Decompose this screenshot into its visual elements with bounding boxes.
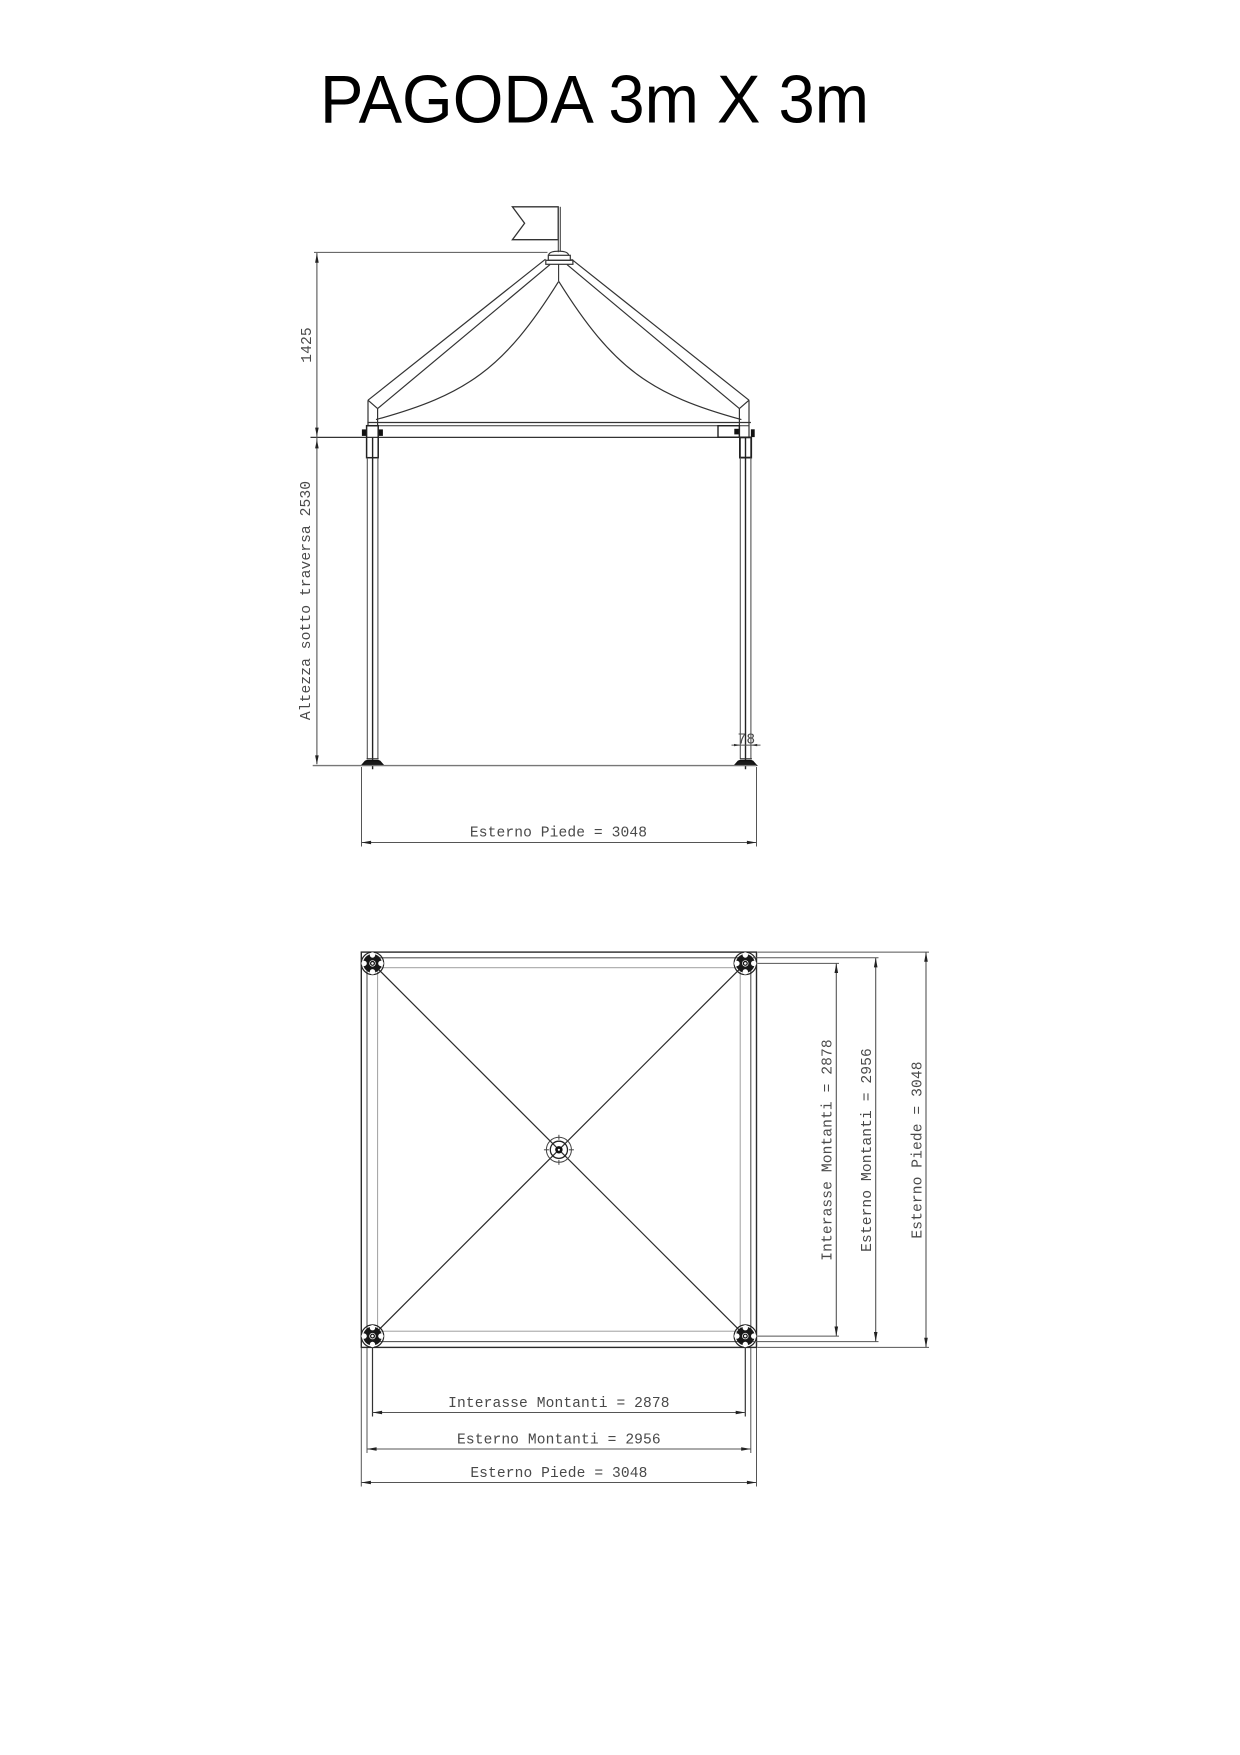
svg-text:Altezza sotto traversa 2530: Altezza sotto traversa 2530: [299, 481, 315, 720]
svg-text:Esterno Piede = 3048: Esterno Piede = 3048: [470, 826, 647, 842]
svg-text:Esterno Piede = 3048: Esterno Piede = 3048: [470, 1466, 647, 1482]
svg-text:1425: 1425: [300, 327, 316, 362]
svg-text:PAGODA 3m X 3m: PAGODA 3m X 3m: [320, 62, 869, 137]
svg-text:Esterno Montanti = 2956: Esterno Montanti = 2956: [457, 1433, 661, 1449]
svg-text:Esterno Piede = 3048: Esterno Piede = 3048: [910, 1061, 926, 1238]
svg-text:Interasse Montanti = 2878: Interasse Montanti = 2878: [821, 1039, 837, 1260]
svg-text:Interasse Montanti = 2878: Interasse Montanti = 2878: [448, 1396, 669, 1412]
svg-text:78: 78: [738, 733, 756, 749]
svg-text:Esterno Montanti = 2956: Esterno Montanti = 2956: [860, 1048, 876, 1252]
